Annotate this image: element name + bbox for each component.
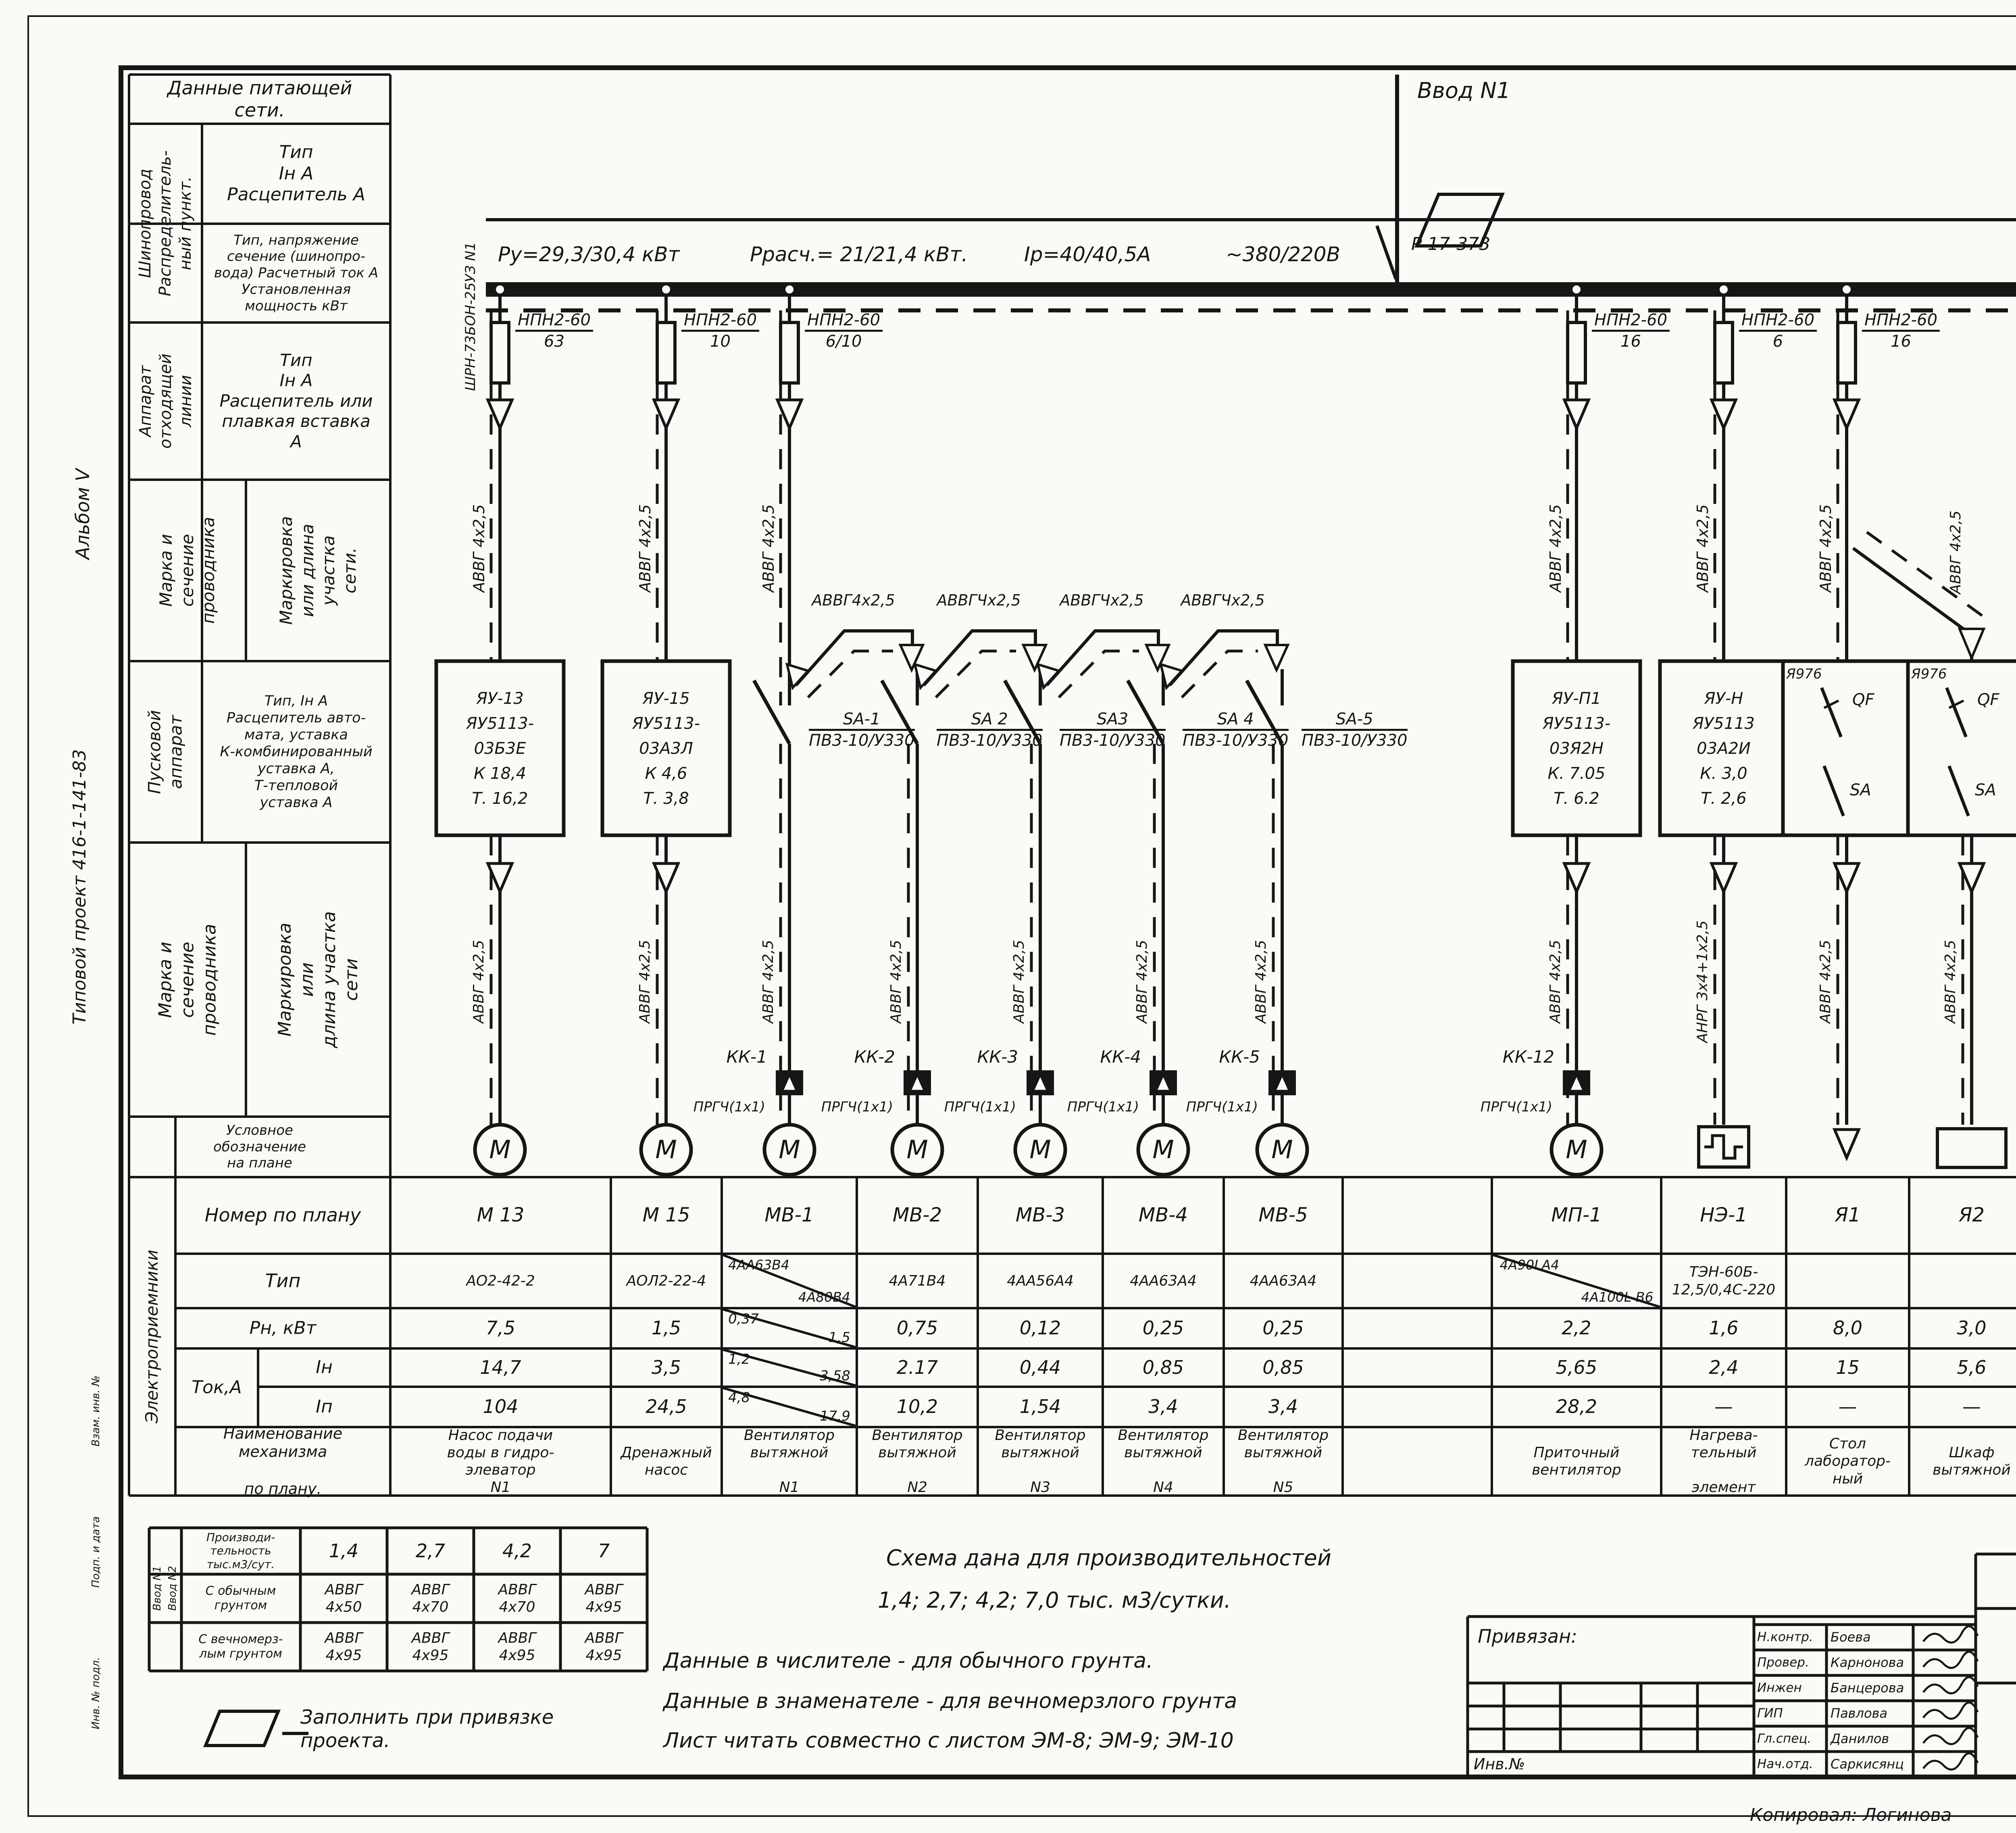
bus-voltage-label: ~380/220В [1226, 241, 1399, 268]
album-label: Альбом V [71, 443, 95, 585]
cell-type: 4АА63А4 [1225, 1255, 1341, 1307]
cable-label: АВВГ 4х2,5 [1816, 897, 1835, 1066]
cell-type: 4А71В4 [858, 1255, 976, 1307]
cell-name: Вентилятор вытяжной N1 [723, 1428, 855, 1495]
cell-iin: 3,5 [612, 1349, 720, 1386]
sa2-label: SA [1850, 778, 1890, 802]
qf-box-tag: Я976 [1911, 664, 1964, 684]
bridge-cable-label: АВВГ4х2,5 [797, 589, 910, 612]
cell-type-diag-part: 4А100L В6 [1581, 1289, 1653, 1305]
kk-label: КК-12 [1468, 1047, 1554, 1067]
cell-pn: 7,5 [392, 1309, 609, 1348]
wire2-len-label: Маркировка или длина участка сети [274, 907, 362, 1052]
mini-cap: 4,2 [474, 1528, 560, 1574]
bridge-line [1047, 631, 1158, 685]
cell-iip-diag-part: 4,8 [728, 1390, 750, 1406]
cable-label: АВВГ 4х2,5 [470, 462, 489, 635]
sign-name: Данилов [1831, 1728, 1913, 1750]
cable-label: АВВГ 4х2,5 [1693, 462, 1713, 635]
sign-name: Банцерова [1831, 1677, 1913, 1699]
cell-type [1344, 1255, 1490, 1307]
busline-spec: Тип Iн А Расцепитель А [202, 124, 390, 224]
cable-label: АВВГ 4х2,5 [1252, 897, 1270, 1066]
cable-label: АВВГ 4х2,5 [759, 897, 777, 1066]
bus-icalc-label: Iр=40/40,5А [1024, 241, 1234, 268]
cell-num [1344, 1178, 1490, 1253]
motor-letter: М [1143, 1138, 1183, 1162]
fuse-label: НПН2-6063 [515, 311, 593, 350]
cable-label: АВВГ 4х2,5 [887, 897, 905, 1066]
cell-name: Вентилятор вытяжной N4 [1104, 1428, 1222, 1495]
sign-role: Провер. [1757, 1652, 1826, 1674]
cell-iin: 0,85 [1104, 1349, 1222, 1386]
row-label-name: Наименование механизма по плану. [175, 1427, 390, 1496]
sa-label-num: SA 2 [937, 710, 1043, 731]
cell-iip-diag: 4,817,9 [723, 1388, 856, 1426]
fuse-label-num: НПН2-60 [1592, 311, 1670, 332]
kk-label: КК-5 [1173, 1047, 1260, 1067]
sa2-label: SA [1975, 778, 2015, 802]
cell-name [1344, 1428, 1490, 1495]
cell-pn [1344, 1309, 1490, 1348]
bus-node [1571, 284, 1582, 295]
motor-letter: М [897, 1138, 937, 1162]
cable-label: АВВГ 4х2,5 [1941, 897, 1960, 1066]
cell-iin: 14,7 [392, 1349, 609, 1386]
mini-value: АВВГ 4х95 [560, 1575, 647, 1622]
cell-iin: 15 [1788, 1349, 1908, 1386]
cell-name: Вентилятор вытяжной N2 [858, 1428, 976, 1495]
cable-label: АВВГ 4х2,5 [1947, 484, 1965, 621]
mini-row-label: С обычным грунтом [182, 1575, 299, 1622]
starter-box-text: ЯУ-Н ЯУ5113 03А2И К. 3,0 Т. 2,6 [1663, 664, 1784, 833]
cell-num: Я2 [1911, 1178, 2016, 1253]
bus-pcalc-label: Ррасч.= 21/21,4 кВт. [750, 241, 1008, 268]
motor-letter: М [646, 1138, 686, 1162]
cell-num: М 15 [612, 1178, 720, 1253]
prg-label: ПРГЧ(1х1) [1030, 1097, 1139, 1117]
sign-role: Гл.спец. [1757, 1728, 1826, 1750]
sa-label-num: SA3 [1060, 710, 1166, 731]
signature [1923, 1702, 1978, 1719]
fuse-label: НПН2-606 [1739, 311, 1817, 350]
mini-header: Производи- тельность тыс.м3/сут. [182, 1529, 299, 1573]
cell-name: Вентилятор вытяжной N5 [1225, 1428, 1341, 1495]
bus-node [1841, 284, 1852, 295]
busline-group-label: Шинопровод Распределитель- ный пункт. [135, 150, 196, 296]
privyazan-label: Привязан: [1478, 1623, 1647, 1651]
bus-node [661, 284, 671, 295]
fuse-label: НПН2-606/10 [805, 311, 883, 350]
cell-num: МВ-2 [858, 1178, 976, 1253]
wire2-mark-label: Марка и сечение проводника [154, 921, 221, 1038]
bus-node [1718, 284, 1729, 295]
cell-type: АО2-42-2 [392, 1255, 609, 1307]
cell-type-diag: 4АА63В44А80В4 [723, 1255, 856, 1307]
cell-name: Стол лаборатор- ный [1788, 1428, 1908, 1495]
bridge-cable-label: АВВГЧх2,5 [1166, 589, 1279, 612]
cell-iin-diag-part: 3,58 [820, 1368, 850, 1384]
cell-iin: 2.17 [858, 1349, 976, 1386]
note-1: Схема дана для производительностей [806, 1542, 1411, 1574]
vvod-label: Ввод N1 [1417, 77, 1562, 105]
row-label-iip: Iп [258, 1387, 390, 1427]
cell-pn: 0,75 [858, 1309, 976, 1348]
bridge-line [796, 631, 912, 685]
drawing-sheet: Альбом V Типовой проект 416-1-141-83 Вза… [0, 0, 2016, 1833]
cell-name: Нагрева- тельный элемент [1663, 1428, 1785, 1495]
cell-pn: 8,0 [1788, 1309, 1908, 1348]
mini-cap: 7 [560, 1528, 647, 1574]
powerhead-title: Данные питающей сети. [129, 75, 390, 124]
cell-pn: 1,6 [1663, 1309, 1785, 1348]
sign-role: Нач.отд. [1757, 1753, 1826, 1775]
cell-type-diag-part: 4А80В4 [798, 1289, 850, 1305]
cell-iip: 24,5 [612, 1388, 720, 1426]
qf-box-tag: Я976 [1786, 664, 1839, 684]
sign-name: Карнонова [1831, 1652, 1913, 1674]
bridge-cable-label: АВВГЧх2,5 [1045, 589, 1158, 612]
cell-type [1911, 1255, 2016, 1307]
sa-label: SA 2ПВ3-10/У330 [937, 710, 1043, 749]
note-4: Данные в знаменателе - для вечномерзлого… [663, 1685, 1429, 1717]
cell-pn-diag-part: 0,37 [728, 1311, 759, 1327]
fuse-symbol [781, 322, 798, 383]
fuse-symbol [1715, 322, 1733, 383]
mini-value: АВВГ 4х50 [300, 1575, 387, 1622]
cell-iip: 104 [392, 1388, 609, 1426]
cell-num: МВ-3 [979, 1178, 1101, 1253]
mini-value: АВВГ 4х95 [387, 1623, 474, 1670]
sign-role: Н.контр. [1757, 1626, 1826, 1648]
sa-label-den: ПВ3-10/У330 [937, 731, 1043, 749]
qf-box [1908, 661, 2016, 835]
starter-box-text: ЯУ-15 ЯУ5113- 03А3Л К 4,6 Т. 3,8 [606, 664, 727, 833]
cell-iin: 5,6 [1911, 1349, 2016, 1386]
cable-label: АВВГ 4х2,5 [636, 462, 655, 635]
cell-pn-diag: 0,371,5 [723, 1309, 856, 1347]
sa-label: SA-5ПВ3-10/У330 [1302, 710, 1408, 749]
bus-bar [486, 282, 2016, 297]
starter-spec: Тип, Iн А Расцепитель авто- мата, уставк… [202, 661, 390, 843]
prg-label: ПРГЧ(1х1) [656, 1097, 765, 1117]
cell-iin-diag: 1,23,58 [723, 1350, 856, 1386]
cell-name: Приточный вентилятор [1493, 1428, 1660, 1495]
cell-pn: 0,25 [1225, 1309, 1341, 1348]
fuse-label-den: 16 [1862, 332, 1940, 350]
cell-iin-diag-part: 1,2 [728, 1351, 750, 1367]
copied-by: Копировал: Логинова [1750, 1801, 2016, 1829]
bridge-line [1170, 631, 1277, 685]
fuse-label-num: НПН2-60 [1739, 311, 1817, 332]
stamp-inv: Инв. № подл. [88, 1629, 104, 1758]
row-label-iin: Iн [258, 1348, 390, 1387]
qf-label: QF [1852, 688, 1897, 712]
object-title: Административно-производственное здание … [1978, 1610, 2016, 1682]
cable-label: АВВГ 4х2,5 [1816, 462, 1836, 635]
fuse-label-den: 16 [1592, 332, 1670, 350]
stamp-vzam: Взам. инв. № [88, 1346, 104, 1475]
bridge-cable-label: АВВГЧх2,5 [923, 589, 1035, 612]
fuse-label-den: 63 [515, 332, 593, 350]
mini-cap: 2,7 [387, 1528, 474, 1574]
fuse-symbol [491, 322, 509, 383]
outgoing-group-label: Аппарат отходящей линии [135, 354, 196, 449]
cell-iip: 3,4 [1104, 1388, 1222, 1426]
sa-label-den: ПВ3-10/У330 [1183, 731, 1289, 749]
cell-iin: 0,85 [1225, 1349, 1341, 1386]
cell-name: Дренажный насос [612, 1428, 720, 1495]
cell-iin: 5,65 [1493, 1349, 1660, 1386]
cell-num: МВ-1 [723, 1178, 855, 1253]
cell-type-diag-part: 4АА63В4 [728, 1257, 789, 1273]
signature [1923, 1753, 1978, 1769]
cell-num: НЭ-1 [1663, 1178, 1785, 1253]
cell-num: МВ-5 [1225, 1178, 1341, 1253]
inv-label: Инв.№ [1474, 1753, 1574, 1776]
sa-label-den: ПВ3-10/У330 [809, 731, 915, 749]
legend-text: Заполнить при привязке проекта. [300, 1703, 696, 1756]
fuse-label: НПН2-6016 [1592, 311, 1670, 350]
starter-box-text: ЯУ-П1 ЯУ5113- 03Я2Н К. 7.05 Т. 6.2 [1516, 664, 1637, 833]
cell-type: 4АА63А4 [1104, 1255, 1222, 1307]
kk-label: КК-1 [681, 1047, 767, 1067]
sign-name: Саркисянц [1831, 1753, 1913, 1775]
busline-spec2: Тип, напряжение сечение (шинопро- вода) … [202, 224, 390, 322]
starter-group-label: Пусковой аппарат [144, 710, 187, 794]
fuse-label-num: НПН2-60 [681, 311, 759, 332]
cell-iip: — [1788, 1388, 1908, 1426]
cabinet-label: ШРН-73БОН-25УЗ N1 [462, 226, 480, 407]
cell-iip: 10,2 [858, 1388, 976, 1426]
motor-letter: М [1020, 1138, 1060, 1162]
mini-value: АВВГ 4х70 [387, 1575, 474, 1622]
cell-name: Шкаф вытяжной [1911, 1428, 2016, 1495]
project-label: Типовой проект 416-1-141-83 [68, 621, 92, 1153]
starter-box-text: ЯУ-13 ЯУ5113- 03Б3Е К 18,4 Т. 16,2 [439, 664, 560, 833]
cell-type: 4АА56А4 [979, 1255, 1101, 1307]
sa-label-num: SA 4 [1183, 710, 1289, 731]
fuse-label-num: НПН2-60 [1862, 311, 1940, 332]
cell-pn: 1,5 [612, 1309, 720, 1348]
cell-pn: 0,25 [1104, 1309, 1222, 1348]
wire1-mark-label: Марка и сечение проводника [156, 517, 219, 624]
cell-iip: 3,4 [1225, 1388, 1341, 1426]
fuse-label: НПН2-6010 [681, 311, 759, 350]
fuse-symbol [1838, 322, 1856, 383]
prg-label: ПРГЧ(1х1) [907, 1097, 1016, 1117]
cell-name: Вентилятор вытяжной N3 [979, 1428, 1101, 1495]
terminal-arrow-icon [1835, 1130, 1859, 1158]
cell-iip: 28,2 [1493, 1388, 1660, 1426]
bus-node [495, 284, 505, 295]
wire1-len-label: Маркировка или длина участка сети. [276, 516, 360, 625]
motor-letter: М [480, 1138, 520, 1162]
cell-pn-diag-part: 1,5 [829, 1329, 850, 1346]
cable-label: АВВГ 4х2,5 [759, 462, 779, 635]
sa-label-den: ПВ3-10/У330 [1060, 731, 1166, 749]
cell-num: МП-1 [1493, 1178, 1660, 1253]
sign-role: ГИП [1757, 1702, 1826, 1725]
row-label-type: Тип [175, 1254, 390, 1308]
signature [1923, 1652, 1978, 1668]
cable-label: АВВГ 4х2,5 [1546, 897, 1564, 1066]
mini-value: АВВГ 4х95 [560, 1623, 647, 1670]
cabinet-symbol [1937, 1129, 2006, 1167]
cell-type: АОЛ2-22-4 [612, 1255, 720, 1307]
fuse-label: НПН2-6016 [1862, 311, 1940, 350]
mini-cap: 1,4 [300, 1528, 387, 1574]
fuse-label-num: НПН2-60 [805, 311, 883, 332]
fuse-symbol [657, 322, 675, 383]
bus-pinst-label: Ру=29,3/30,4 кВт [498, 241, 732, 268]
fuse-label-num: НПН2-60 [515, 311, 593, 332]
cable-label: АВВГ 4х2,5 [1010, 897, 1028, 1066]
cell-type-diag: 4А90LА44А100L В6 [1493, 1255, 1660, 1307]
bridge-arrow-icon [1265, 645, 1288, 670]
sa-label: SA-1ПВ3-10/У330 [809, 710, 915, 749]
row-label-tok: Ток,А [175, 1348, 258, 1427]
cell-iin: 0,44 [979, 1349, 1101, 1386]
row-label-num: Номер по плану [175, 1177, 390, 1254]
qf-box [1783, 661, 1910, 835]
cable-label: АВВГ 4х2,5 [1546, 462, 1566, 635]
fuse-label-den: 6/10 [805, 332, 883, 350]
symbol-row-label: Условное обозначение на плане [129, 1117, 390, 1177]
cell-num: Я1 [1788, 1178, 1908, 1253]
mini-value: АВВГ 4х70 [474, 1575, 560, 1622]
cell-iin: 2,4 [1663, 1349, 1785, 1386]
cable-label: АВВГ 4х2,5 [636, 897, 654, 1066]
kk-label: КК-3 [931, 1047, 1018, 1067]
cell-num: М 13 [392, 1178, 609, 1253]
motor-letter: М [1556, 1138, 1597, 1162]
signature [1923, 1626, 1978, 1642]
cell-iin [1344, 1349, 1490, 1386]
cell-type: ТЭН-60Б- 12,5/0,4С-220 [1663, 1255, 1785, 1307]
bridge-arrow-icon [1960, 629, 1984, 658]
cell-type [1788, 1255, 1908, 1307]
sa-blade [754, 680, 789, 744]
cell-type-diag-part: 4А90LА4 [1500, 1257, 1560, 1273]
fuse-symbol [1568, 322, 1585, 383]
fuse-label-den: 10 [681, 332, 759, 350]
motor-letter: М [769, 1138, 810, 1162]
row-label-pn: Рн, кВт [175, 1308, 390, 1348]
kk-label: КК-4 [1054, 1047, 1141, 1067]
mini-side2: Ввод N2 [166, 1534, 179, 1643]
cable-label: АНРГ 3х4+1х2,5 [1693, 897, 1712, 1066]
sa-label-num: SA-5 [1302, 710, 1408, 731]
sign-name: Павлова [1831, 1702, 1913, 1725]
cable-label: АВВГ 4х2,5 [470, 897, 488, 1066]
cell-iip-diag-part: 17,9 [820, 1408, 850, 1424]
cell-num: МВ-4 [1104, 1178, 1222, 1253]
note-2: 1,4; 2,7; 4,2; 7,0 тыс. м3/сутки. [802, 1584, 1306, 1617]
doc-number: ТП 416-1-141.83 [1976, 1554, 2016, 1608]
mini-value: АВВГ 4х95 [300, 1623, 387, 1670]
prg-label: ПРГЧ(1х1) [1443, 1097, 1552, 1117]
kk-label: КК-2 [808, 1047, 895, 1067]
prg-label: ПРГЧ(1х1) [1149, 1097, 1258, 1117]
sa-label: SA3ПВ3-10/У330 [1060, 710, 1166, 749]
prg-label: ПРГЧ(1х1) [784, 1097, 893, 1117]
signature [1923, 1728, 1978, 1744]
cell-iip: — [1911, 1388, 2016, 1426]
switch-label: Р 17-373 [1411, 232, 1540, 257]
cell-iip: — [1663, 1388, 1785, 1426]
bus-node [784, 284, 795, 295]
mini-row-label: С вечномерз- лым грунтом [182, 1623, 299, 1670]
bridge-dashed [1867, 532, 1984, 617]
fuse-label-den: 6 [1739, 332, 1817, 350]
signature [1923, 1677, 1978, 1693]
note-5: Лист читать совместно с листом ЭМ-8; ЭМ-… [663, 1725, 1450, 1757]
consumers-side-label: Электроприемники [142, 1250, 163, 1423]
cable-label: АВВГ 4х2,5 [1133, 897, 1151, 1066]
qf-label: QF [1977, 688, 2016, 712]
sa-label-den: ПВ3-10/У330 [1302, 731, 1408, 749]
sign-role: Инжен [1757, 1677, 1826, 1699]
sign-name: Боева [1831, 1626, 1913, 1648]
note-3: Данные в числителе - для обычного грунта… [663, 1645, 1349, 1677]
cell-name: Насос подачи воды в гидро- элеватор N1 [392, 1428, 609, 1495]
cell-pn: 2,2 [1493, 1309, 1660, 1348]
cell-iip: 1,54 [979, 1388, 1101, 1426]
bridge-line [924, 631, 1035, 685]
motor-letter: М [1262, 1138, 1302, 1162]
sa-label-num: SA-1 [809, 710, 915, 731]
outgoing-spec: Тип Iн А Расцепитель или плавкая вставка… [202, 322, 390, 480]
mini-value: АВВГ 4х95 [474, 1623, 560, 1670]
stamp-podp: Подп. и дата [88, 1488, 104, 1617]
sa-label: SA 4ПВ3-10/У330 [1183, 710, 1289, 749]
legend-parallelogram [206, 1711, 278, 1746]
sheet-title: Схема питания Лист 1 [1976, 1683, 2016, 1777]
mini-side1: Ввод N1 [151, 1534, 164, 1643]
cell-pn: 3,0 [1911, 1309, 2016, 1348]
cell-iip [1344, 1388, 1490, 1426]
cell-pn: 0,12 [979, 1309, 1101, 1348]
